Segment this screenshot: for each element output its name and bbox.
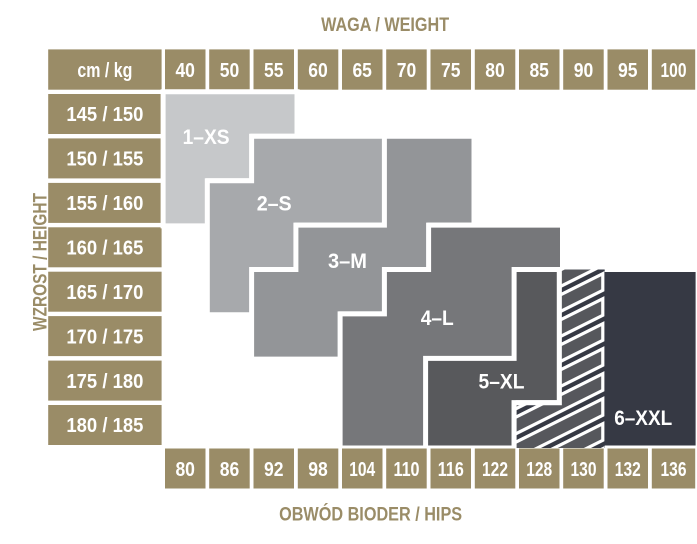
svg-text:cm / kg: cm / kg bbox=[77, 60, 132, 82]
svg-text:86: 86 bbox=[220, 459, 240, 481]
svg-text:98: 98 bbox=[308, 459, 328, 481]
svg-text:116: 116 bbox=[438, 459, 464, 481]
svg-text:55: 55 bbox=[264, 60, 284, 82]
svg-text:80: 80 bbox=[175, 459, 195, 481]
svg-text:90: 90 bbox=[574, 60, 594, 82]
svg-text:1–XS: 1–XS bbox=[183, 126, 230, 149]
svg-text:OBWÓD BIODER / HIPS: OBWÓD BIODER / HIPS bbox=[279, 504, 462, 526]
svg-text:6–XXL: 6–XXL bbox=[614, 407, 672, 430]
svg-text:155 / 160: 155 / 160 bbox=[66, 193, 143, 215]
svg-text:50: 50 bbox=[220, 60, 240, 82]
svg-text:100: 100 bbox=[661, 60, 687, 82]
svg-text:130: 130 bbox=[571, 459, 597, 481]
svg-text:122: 122 bbox=[482, 459, 508, 481]
svg-text:136: 136 bbox=[661, 459, 687, 481]
svg-text:60: 60 bbox=[308, 60, 328, 82]
svg-text:145 / 150: 145 / 150 bbox=[66, 104, 143, 126]
svg-text:95: 95 bbox=[618, 60, 638, 82]
svg-text:160 / 165: 160 / 165 bbox=[66, 238, 143, 260]
svg-text:150 / 155: 150 / 155 bbox=[66, 149, 143, 171]
svg-text:110: 110 bbox=[394, 459, 420, 481]
svg-text:132: 132 bbox=[615, 459, 641, 481]
svg-text:4–L: 4–L bbox=[421, 307, 454, 330]
svg-text:165 / 170: 165 / 170 bbox=[66, 282, 143, 304]
svg-text:75: 75 bbox=[441, 60, 461, 82]
svg-text:92: 92 bbox=[264, 459, 284, 481]
svg-text:104: 104 bbox=[349, 459, 376, 481]
svg-text:80: 80 bbox=[485, 60, 505, 82]
svg-text:40: 40 bbox=[175, 60, 195, 82]
svg-text:85: 85 bbox=[529, 60, 549, 82]
svg-text:5–XL: 5–XL bbox=[479, 371, 525, 394]
svg-text:70: 70 bbox=[397, 60, 417, 82]
svg-text:180 / 185: 180 / 185 bbox=[66, 415, 143, 437]
svg-text:3–M: 3–M bbox=[328, 250, 367, 273]
svg-text:170 / 175: 170 / 175 bbox=[66, 326, 143, 348]
svg-text:WAGA / WEIGHT: WAGA / WEIGHT bbox=[321, 15, 449, 36]
svg-text:128: 128 bbox=[526, 459, 552, 481]
svg-text:2–S: 2–S bbox=[257, 192, 292, 215]
svg-text:65: 65 bbox=[352, 60, 372, 82]
svg-text:175 / 180: 175 / 180 bbox=[66, 371, 143, 393]
